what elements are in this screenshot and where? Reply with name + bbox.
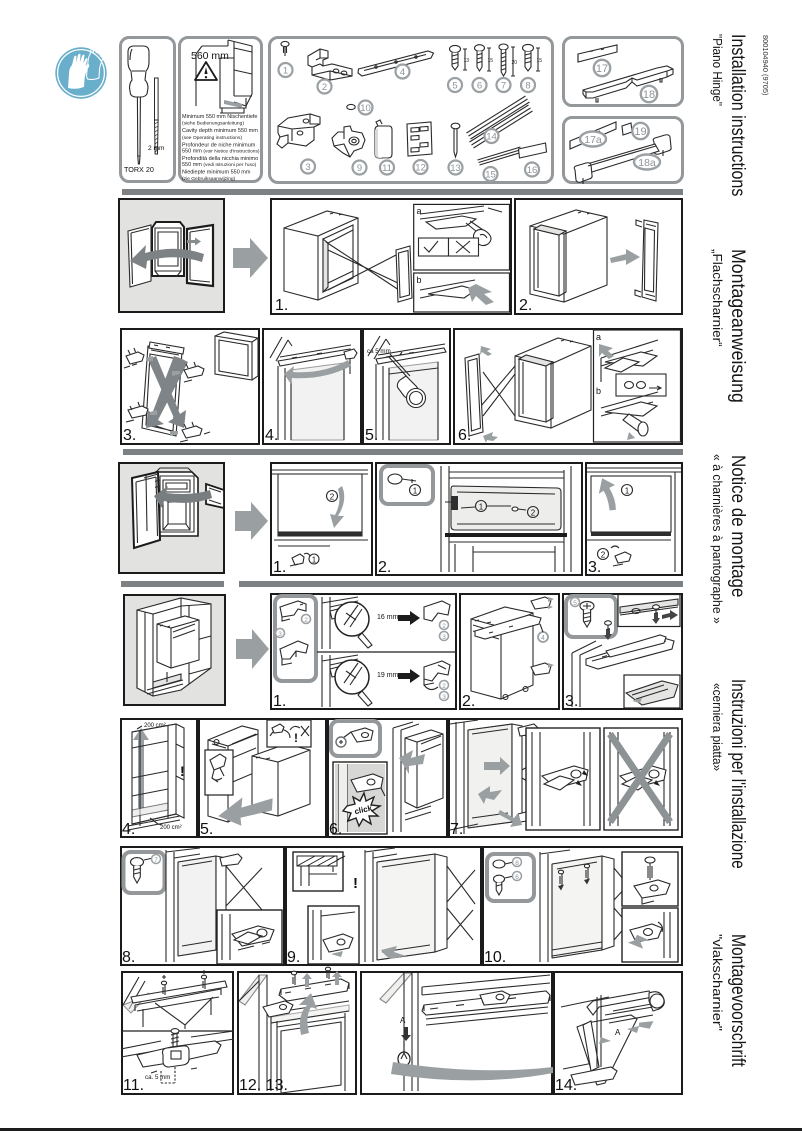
svg-text:7.: 7. [450,821,463,838]
svg-text:13: 13 [463,58,469,64]
svg-text:20: 20 [511,60,517,66]
svg-text:3: 3 [305,162,310,173]
svg-text:2: 2 [442,623,446,630]
svg-text:14.: 14. [555,1077,577,1094]
svg-text:5.: 5. [365,427,378,444]
svg-text:ca. 5 mm: ca. 5 mm [145,1074,170,1081]
svg-text:8: 8 [515,860,519,867]
svg-text:550 mm (voir Notice d'instruct: 550 mm (voir Notice d'instructions) [182,148,260,154]
svg-text:!: ! [180,763,185,779]
svg-text:2: 2 [601,550,606,559]
svg-text:4.: 4. [122,821,135,838]
svg-text:Minimum 550 mm Nischentiefe: Minimum 550 mm Nischentiefe [182,114,258,120]
svg-text:2: 2 [531,508,536,517]
svg-text:6: 6 [515,874,519,881]
svg-text:11.: 11. [123,1077,144,1094]
svg-text:3.: 3. [588,559,601,576]
svg-text:1.: 1. [273,693,286,710]
svg-text:8: 8 [525,80,530,91]
svg-text:13: 13 [450,163,461,174]
svg-text:3.: 3. [123,427,136,444]
svg-text:19: 19 [634,126,646,138]
svg-text:200 cm²: 200 cm² [160,825,182,831]
svg-text:1.: 1. [273,559,286,576]
svg-text:6: 6 [476,80,481,91]
svg-text:8.: 8. [122,949,135,966]
svg-text:18a: 18a [638,157,656,169]
svg-text:17a: 17a [584,134,602,146]
svg-text:550 mm (vedi Istruzioni per l': 550 mm (vedi Istruzioni per l'uso) [182,162,257,168]
svg-text:6.: 6. [329,821,342,838]
svg-text:3: 3 [442,634,446,641]
svg-text:4: 4 [541,635,545,642]
svg-text:2: 2 [442,683,446,690]
svg-text:12. 13.: 12. 13. [239,1077,288,1094]
svg-text:2: 2 [330,493,335,502]
svg-text:1: 1 [413,486,418,495]
svg-text:A: A [615,1028,621,1037]
svg-text:3: 3 [442,694,446,701]
svg-text:2: 2 [321,82,326,93]
svg-text:5.: 5. [200,821,213,838]
svg-text:1: 1 [625,486,630,495]
svg-text:7: 7 [154,857,158,864]
svg-text:10.: 10. [484,949,506,966]
svg-text:!: ! [294,731,298,745]
svg-text:3: 3 [278,631,282,638]
svg-text:6.: 6. [458,427,471,444]
svg-text:b: b [596,386,601,396]
svg-text:9.: 9. [287,949,300,966]
svg-text:2.: 2. [462,693,475,710]
svg-text:12: 12 [415,162,426,173]
svg-text:a: a [417,206,422,216]
svg-text:15: 15 [485,169,496,180]
svg-text:15: 15 [487,58,493,64]
svg-text:19 mm: 19 mm [377,672,399,679]
svg-text:1: 1 [312,555,317,564]
svg-text:Niediepte minimum 550 mm: Niediepte minimum 550 mm [182,169,251,175]
svg-text:11: 11 [382,163,392,174]
svg-text:2: 2 [304,617,308,624]
svg-text:TORX 20: TORX 20 [124,165,154,174]
svg-text:2 mm: 2 mm [148,145,165,152]
svg-text:18: 18 [643,89,655,101]
svg-text:(siehe Bedienungsanleitung): (siehe Bedienungsanleitung) [182,120,244,126]
svg-text:3.: 3. [565,693,578,710]
svg-text:15: 15 [536,58,542,64]
svg-text:2.: 2. [519,297,532,314]
svg-text:4.: 4. [265,427,278,444]
svg-text:(see Operating instructions): (see Operating instructions) [182,134,242,140]
svg-text:560 mm: 560 mm [191,50,229,62]
svg-text:!: ! [353,875,358,892]
svg-text:1.: 1. [275,297,288,314]
svg-text:(zie Gebruiksaanwijzing): (zie Gebruiksaanwijzing) [182,176,236,182]
svg-text:A: A [400,1016,406,1025]
svg-text:10: 10 [360,103,371,114]
svg-text:7: 7 [500,80,505,91]
svg-text:16 mm: 16 mm [377,614,399,621]
svg-text:5: 5 [452,80,457,91]
svg-text:2.: 2. [378,559,391,576]
svg-text:1: 1 [282,65,287,76]
svg-text:1: 1 [479,502,484,511]
svg-text:b: b [417,275,422,285]
svg-text:Cavity depth minimum 550 mm: Cavity depth minimum 550 mm [182,128,258,134]
svg-text:a: a [596,332,601,342]
svg-text:4: 4 [399,67,404,78]
svg-text:16: 16 [526,165,537,176]
svg-text:5: 5 [573,600,577,607]
svg-text:14: 14 [486,131,497,142]
svg-text:17: 17 [596,63,608,75]
svg-text:9: 9 [356,163,361,174]
